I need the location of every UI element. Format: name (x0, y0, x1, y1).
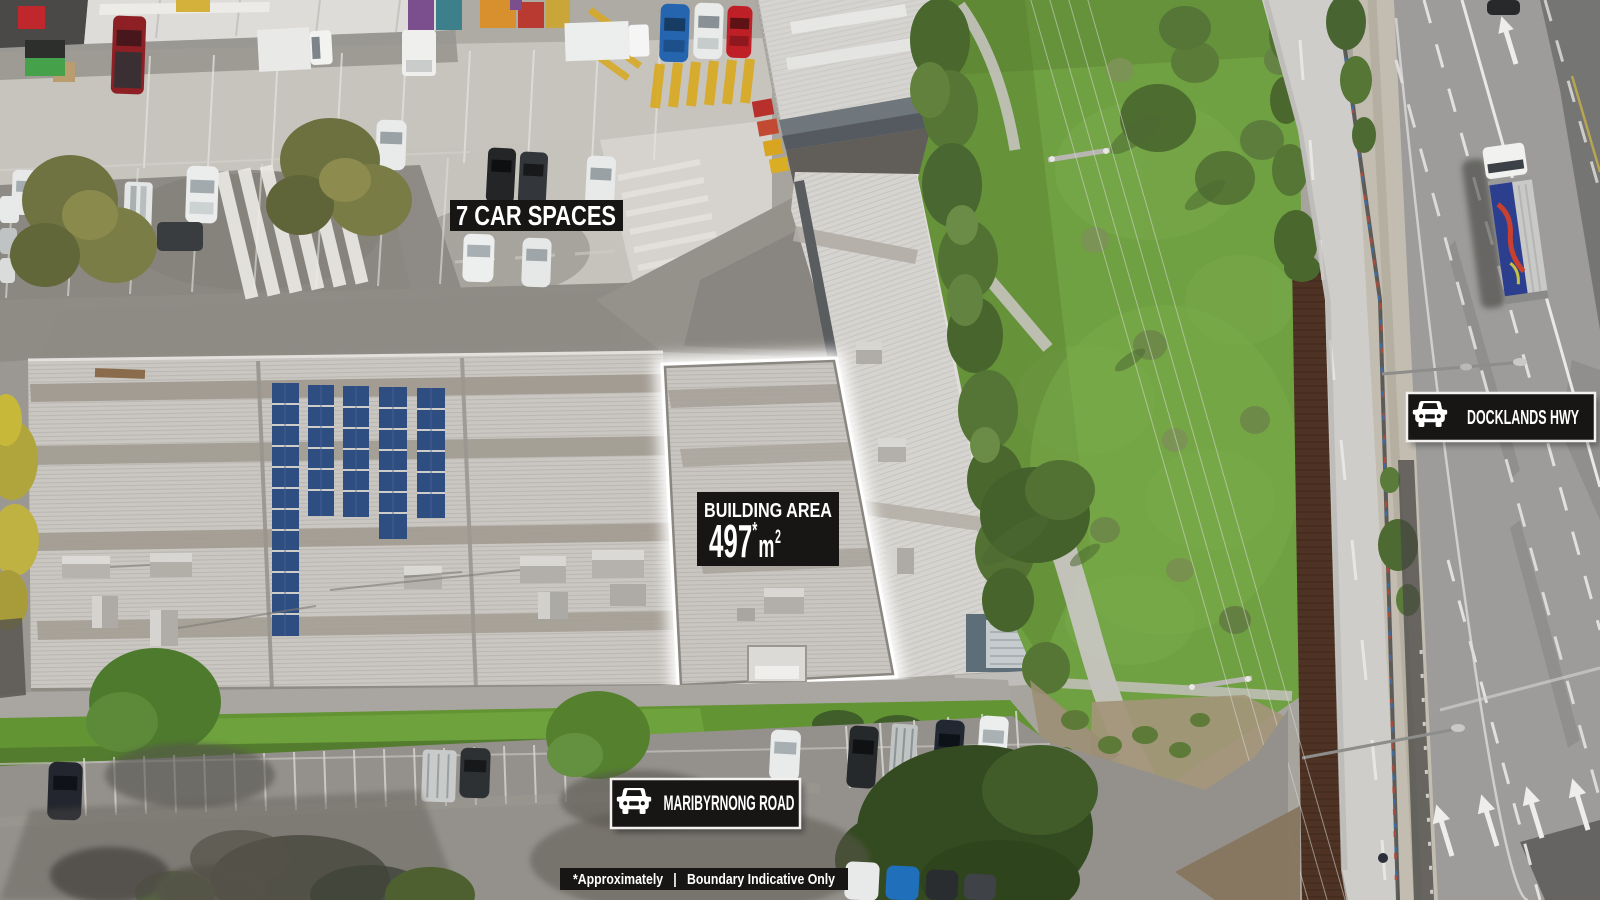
svg-text:MARIBYRNONG ROAD: MARIBYRNONG ROAD (664, 792, 795, 815)
svg-text:*Approximately | Boundary: *Approximately | Boundary Indicative Onl… (573, 872, 835, 888)
svg-text:7 CAR SPACES: 7 CAR SPACES (456, 200, 616, 231)
svg-text:DOCKLANDS HWY: DOCKLANDS HWY (1467, 406, 1579, 429)
